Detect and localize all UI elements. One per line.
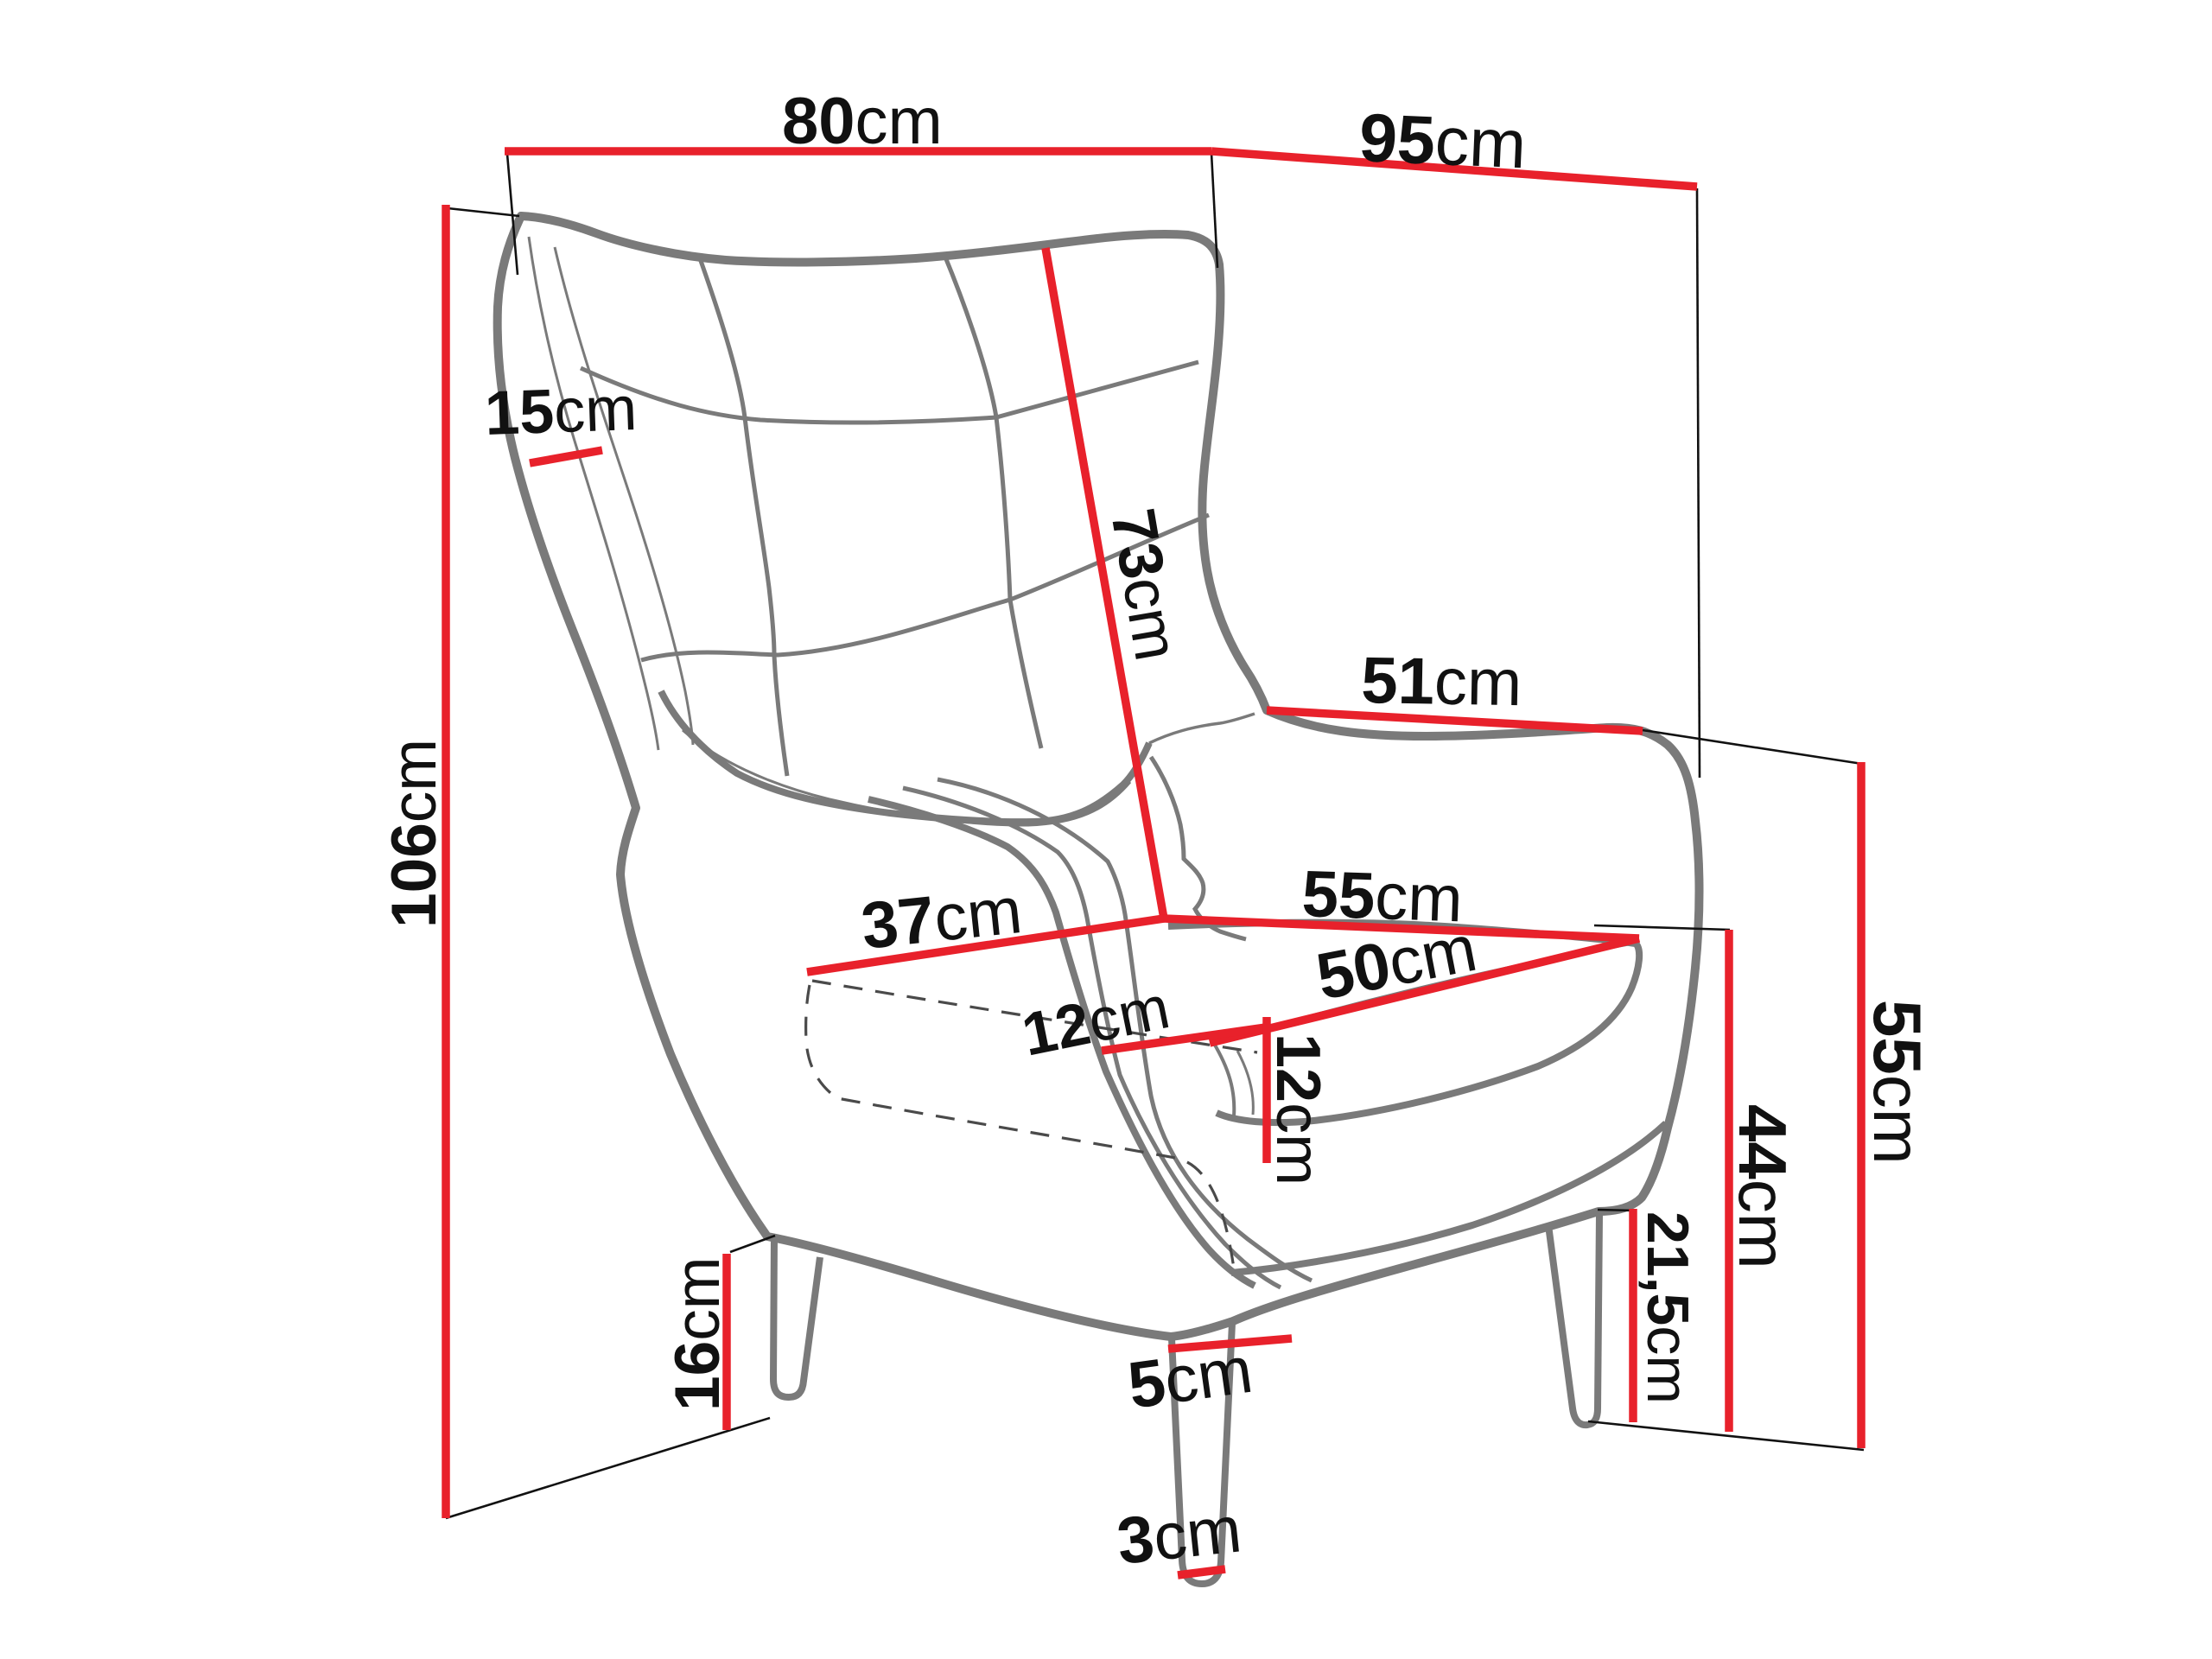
svg-text:15cm: 15cm xyxy=(484,374,639,448)
svg-text:106cm: 106cm xyxy=(379,739,449,928)
svg-text:12cm: 12cm xyxy=(1263,1033,1332,1185)
svg-text:95cm: 95cm xyxy=(1357,99,1528,182)
svg-text:80cm: 80cm xyxy=(782,85,943,158)
svg-text:3cm: 3cm xyxy=(1114,1492,1245,1579)
svg-text:51cm: 51cm xyxy=(1361,644,1522,720)
svg-text:44cm: 44cm xyxy=(1725,1104,1801,1269)
svg-text:21,5cm: 21,5cm xyxy=(1635,1211,1700,1404)
svg-text:16cm: 16cm xyxy=(663,1256,733,1411)
svg-text:55cm: 55cm xyxy=(1859,1000,1935,1165)
